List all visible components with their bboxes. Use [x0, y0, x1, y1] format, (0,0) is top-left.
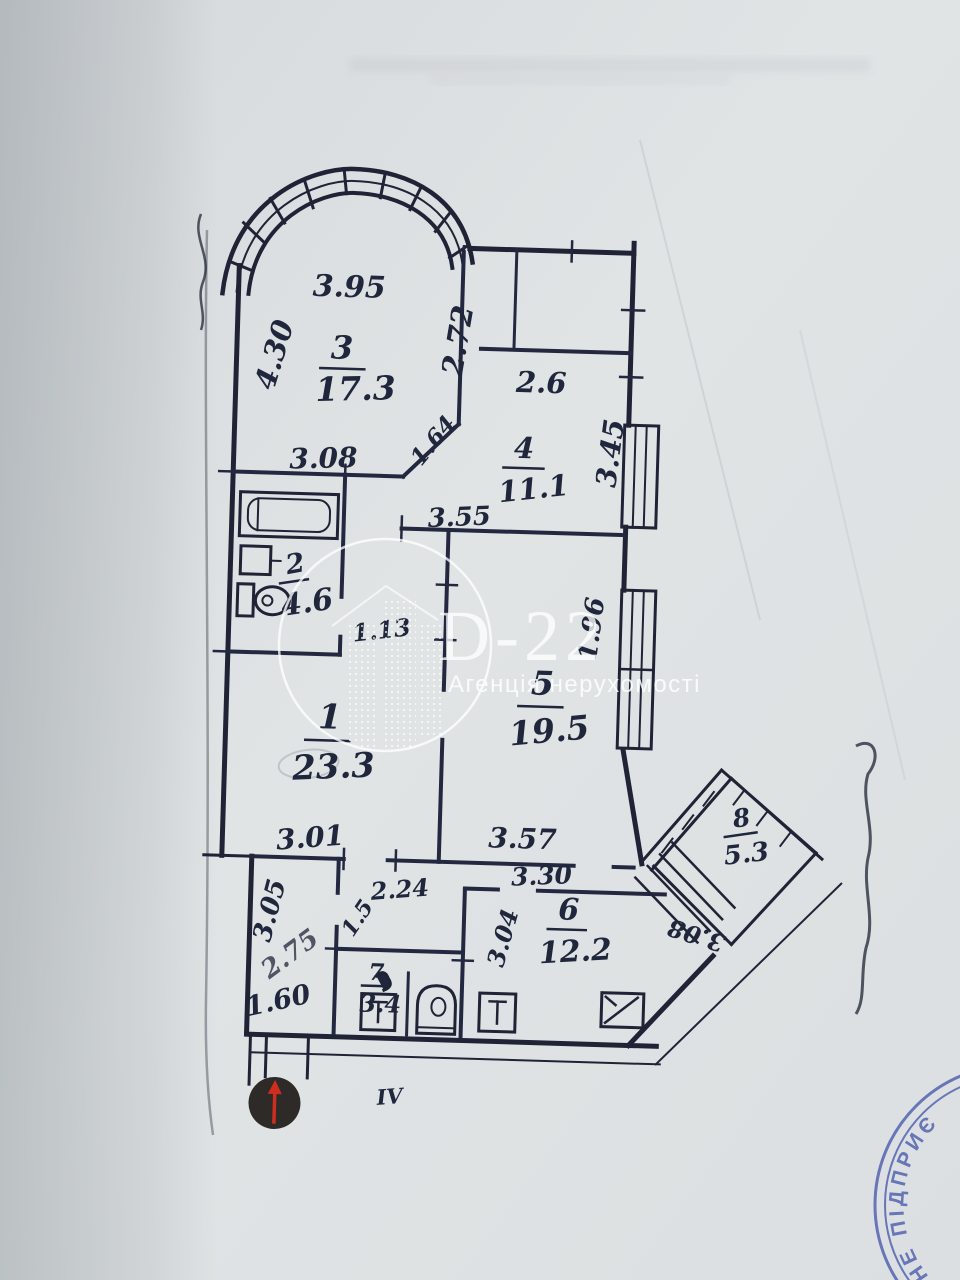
room-area-3: 17.3	[315, 368, 396, 409]
scanned-floorplan-photo: 3 17.3 3.95 4.30 2.72 3.08 1.64 2.6 4 11…	[0, 0, 960, 1280]
floorplan-canvas: 3 17.3 3.95 4.30 2.72 3.08 1.64 2.6 4 11…	[0, 0, 960, 1280]
watermark-subtitle: Агенція нерухомості	[448, 671, 701, 698]
room-number-7: 7	[368, 959, 385, 986]
dim-hall-width: 2.24	[369, 873, 430, 906]
dim-room3-top: 3.95	[312, 269, 386, 306]
room-area-8: 5.3	[722, 837, 770, 872]
room-number-6: 6	[558, 892, 580, 928]
floor-mark: IV	[375, 1083, 407, 1110]
dim-room1-bottom: 3.01	[275, 819, 345, 857]
room-area-7: 3.4	[359, 988, 402, 1018]
fraction-line	[503, 468, 543, 469]
room-number-1: 1	[317, 697, 342, 738]
dim-room4-top: 2.6	[514, 365, 566, 401]
watermark-logo-text: D-22	[438, 596, 606, 676]
fraction-line	[518, 706, 562, 707]
dim-room3-bottom: 3.08	[289, 441, 358, 476]
dim-kitchen-top: 3.30	[510, 860, 573, 891]
fraction-line	[362, 986, 388, 987]
room-area-6: 12.2	[538, 932, 613, 971]
dim-room4-bottom: 3.55	[427, 501, 491, 534]
room-area-5: 19.5	[507, 707, 591, 753]
fraction-line	[548, 929, 586, 930]
room-number-4: 4	[514, 431, 535, 466]
dim-room5-bottom: 3.57	[488, 821, 558, 856]
paper-left-shadow	[0, 0, 218, 1280]
room-number-3: 3	[330, 328, 353, 367]
room-area-1: 23.3	[290, 745, 375, 788]
